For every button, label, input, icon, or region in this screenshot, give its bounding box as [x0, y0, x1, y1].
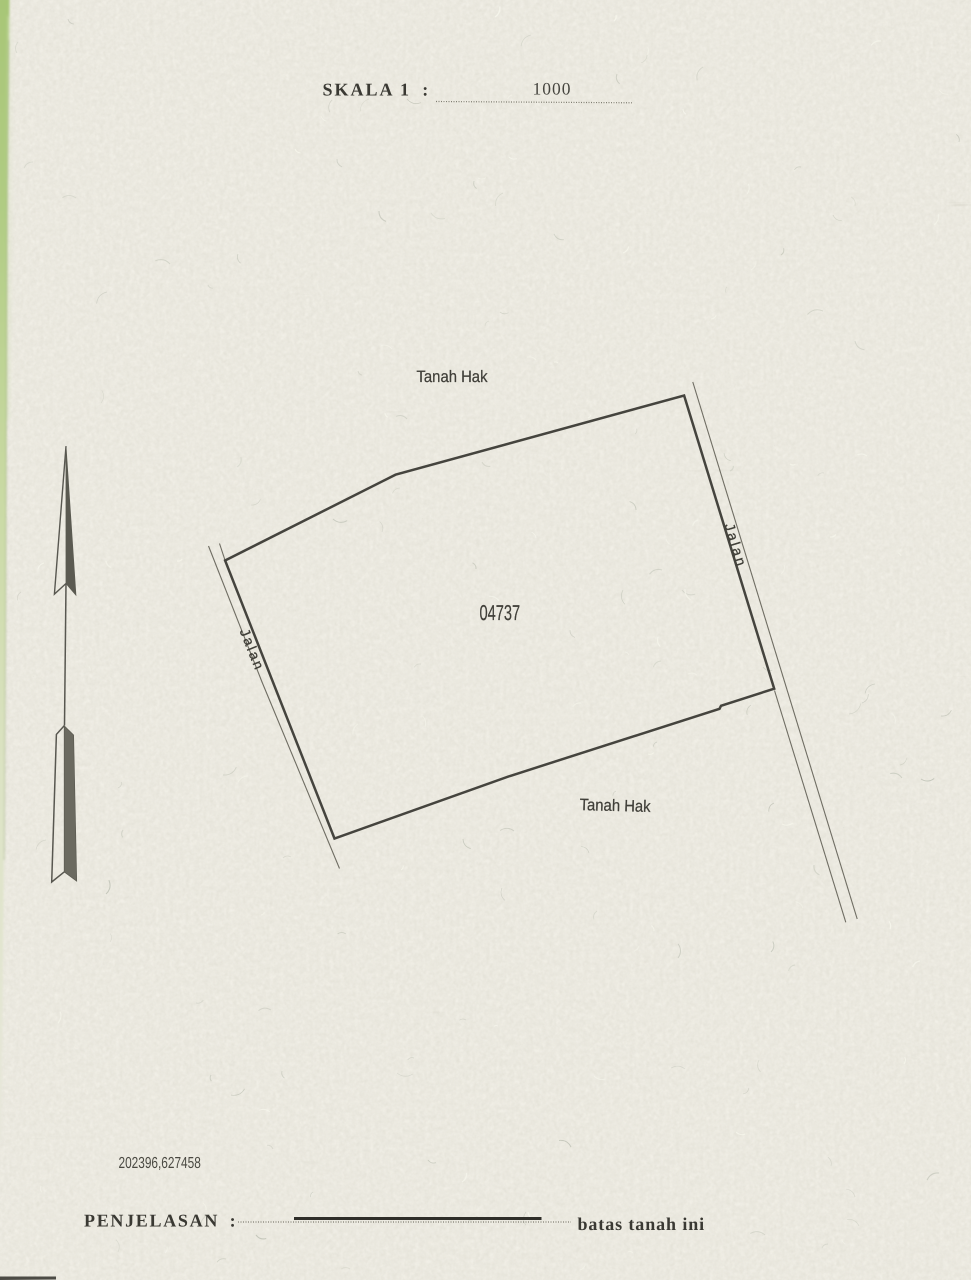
- svg-text:04737: 04737: [480, 601, 521, 625]
- svg-text:PENJELASAN :: PENJELASAN :: [84, 1211, 237, 1231]
- svg-text:202396,627458: 202396,627458: [119, 1155, 201, 1172]
- svg-text:batas tanah ini: batas tanah ini: [578, 1214, 706, 1234]
- svg-text:1000: 1000: [533, 79, 572, 99]
- svg-text:Tanah Hak: Tanah Hak: [579, 796, 651, 816]
- svg-text:SKALA 1 :: SKALA 1 :: [323, 80, 431, 100]
- svg-text:Tanah Hak: Tanah Hak: [417, 368, 489, 386]
